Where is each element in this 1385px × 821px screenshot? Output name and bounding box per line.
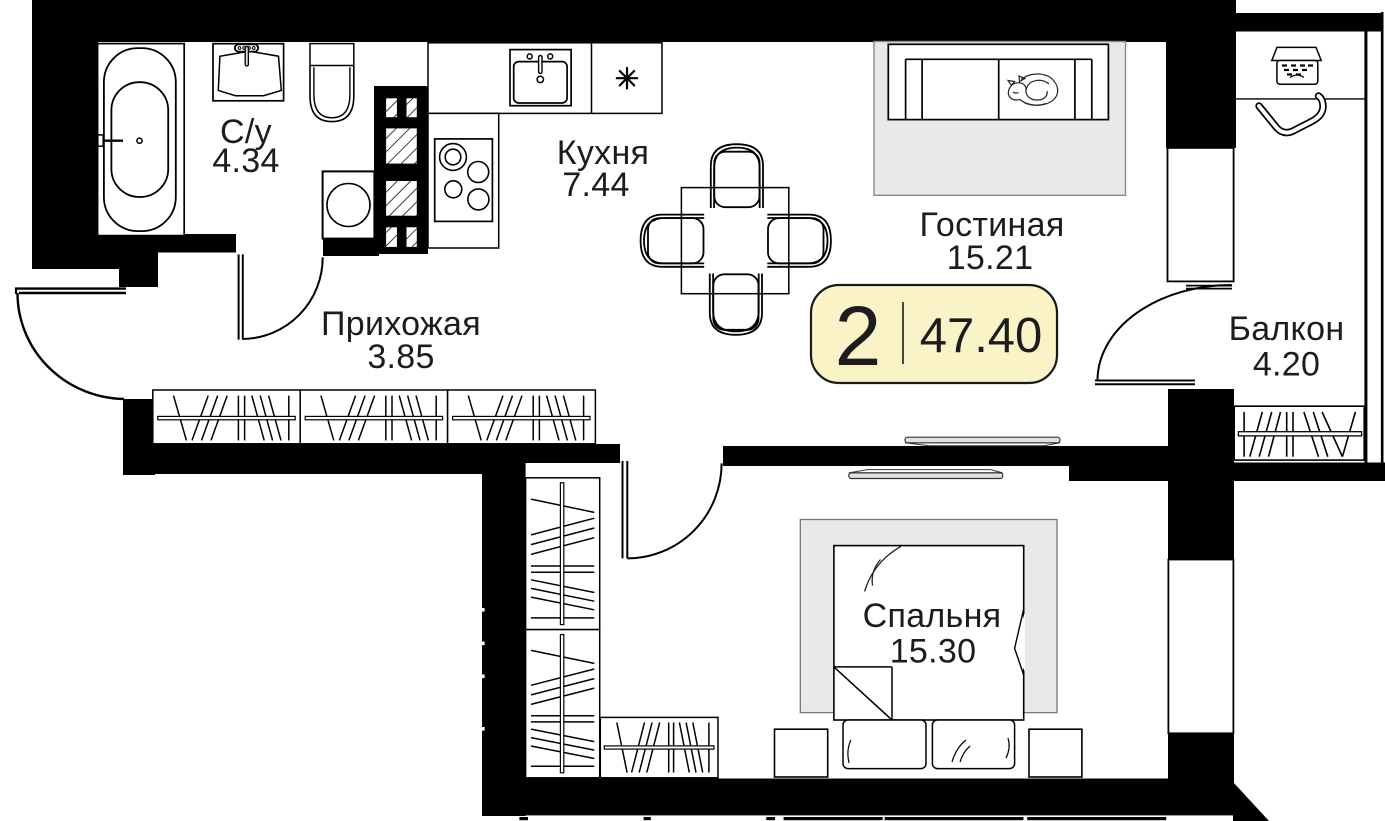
svg-text:Спальня: Спальня <box>863 597 1002 635</box>
svg-text:Балкон: Балкон <box>1229 310 1345 348</box>
svg-text:15.21: 15.21 <box>947 239 1034 277</box>
svg-text:7.44: 7.44 <box>562 166 629 204</box>
svg-text:2: 2 <box>835 289 882 383</box>
svg-text:4.20: 4.20 <box>1253 346 1320 384</box>
svg-text:4.34: 4.34 <box>212 142 279 180</box>
svg-text:47.40: 47.40 <box>920 309 1043 363</box>
svg-text:15.30: 15.30 <box>890 633 977 671</box>
svg-text:3.85: 3.85 <box>367 338 434 376</box>
